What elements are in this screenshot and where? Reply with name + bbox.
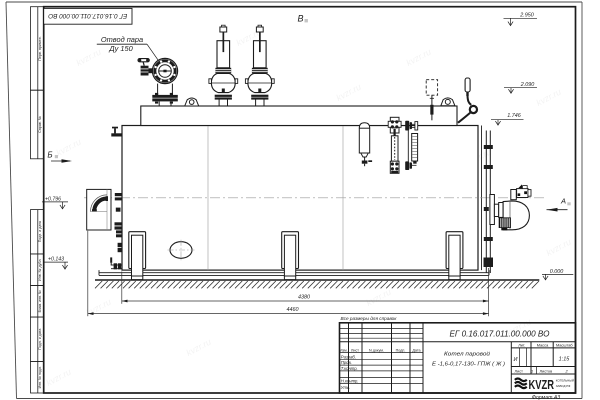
svg-text:Лит.: Лит. <box>518 343 525 348</box>
svg-text:КОТЕЛЬНЫЙ: КОТЕЛЬНЫЙ <box>556 379 574 383</box>
svg-text:Взам. инв. №: Взам. инв. № <box>38 290 42 312</box>
svg-text:Дата: Дата <box>412 349 421 353</box>
svg-text:Масса: Масса <box>537 343 549 348</box>
svg-text:Б: Б <box>47 151 52 160</box>
svg-text:В: В <box>297 14 303 24</box>
svg-text:1: 1 <box>531 368 533 373</box>
svg-text:Листов: Листов <box>540 368 553 373</box>
svg-text:Ду 150: Ду 150 <box>108 44 133 53</box>
svg-text:Инв. № дубл.: Инв. № дубл. <box>38 259 42 281</box>
svg-text:ЗАВОД РФ: ЗАВОД РФ <box>556 384 571 388</box>
svg-text:Подп.: Подп. <box>396 349 406 353</box>
svg-text:Справ. №: Справ. № <box>38 116 42 133</box>
svg-text:+0.143: +0.143 <box>48 257 64 263</box>
svg-text:KVZR: KVZR <box>529 378 555 392</box>
svg-text:+0.796: +0.796 <box>45 196 61 202</box>
svg-text:ЕГ 0.16.017.011.00.000 ВО: ЕГ 0.16.017.011.00.000 ВО <box>450 330 550 339</box>
svg-text:Н.контр.: Н.контр. <box>341 379 359 384</box>
svg-text:Разраб.: Разраб. <box>341 354 356 359</box>
svg-text:ЕГ 0.16.017.011.00.000 ВО: ЕГ 0.16.017.011.00.000 ВО <box>48 12 127 19</box>
svg-text:2.950: 2.950 <box>519 13 534 19</box>
svg-text:Формат А3: Формат А3 <box>532 395 560 400</box>
svg-text:2.090: 2.090 <box>520 82 535 88</box>
svg-text:Все размеры для справок: Все размеры для справок <box>341 316 398 322</box>
svg-text:Т.контр.: Т.контр. <box>341 366 358 371</box>
svg-text:Котел паровой: Котел паровой <box>444 351 490 358</box>
svg-text:Е -1,6-0,17-130- ГПЖ ( Ж ): Е -1,6-0,17-130- ГПЖ ( Ж ) <box>432 362 505 368</box>
svg-text:Лист: Лист <box>351 349 359 353</box>
svg-text:Пров.: Пров. <box>341 360 352 365</box>
svg-text:А: А <box>560 197 566 206</box>
svg-text:0.000: 0.000 <box>550 269 564 275</box>
svg-text:4380: 4380 <box>298 295 310 301</box>
svg-text:Утв.: Утв. <box>341 385 351 390</box>
svg-text:Изм.: Изм. <box>340 349 348 353</box>
svg-text:И: И <box>514 357 518 363</box>
svg-text:Подп. и дата: Подп. и дата <box>38 329 42 350</box>
svg-text:Лист: Лист <box>515 368 524 373</box>
svg-text:1.746: 1.746 <box>507 113 521 119</box>
svg-text:N докум.: N докум. <box>369 349 384 353</box>
svg-text:1:15: 1:15 <box>559 356 571 362</box>
svg-text:Отвод пара: Отвод пара <box>101 35 143 44</box>
svg-text:Подп. и дата: Подп. и дата <box>38 221 42 242</box>
svg-text:4460: 4460 <box>287 307 299 313</box>
svg-text:Инв. № подл.: Инв. № подл. <box>38 366 42 388</box>
svg-text:Масштаб: Масштаб <box>556 343 573 348</box>
svg-text:Перв. примен.: Перв. примен. <box>38 36 42 61</box>
